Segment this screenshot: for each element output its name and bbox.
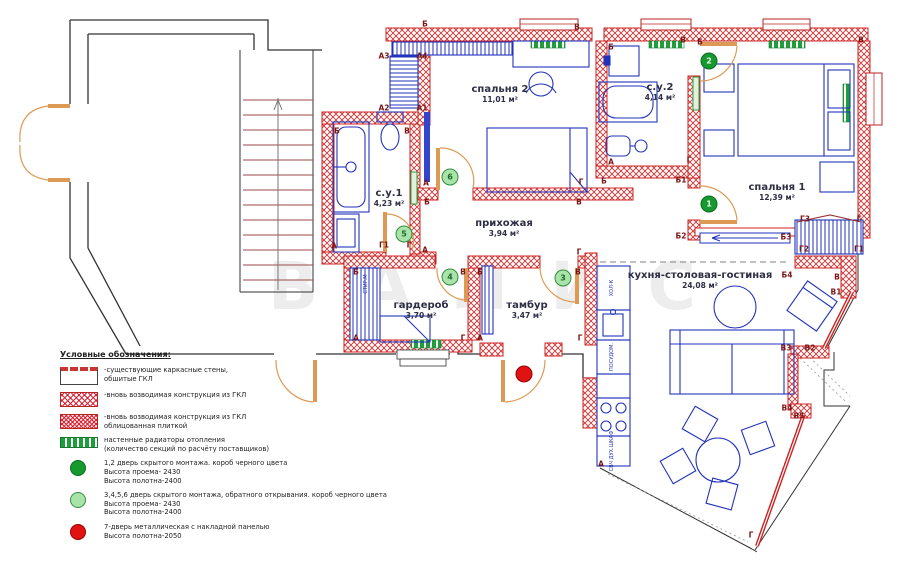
legend-item: 7-дверь металлическая с накладной панель… [60, 523, 390, 540]
gkl-swatch [60, 392, 98, 407]
stairs [243, 98, 313, 290]
floor-plan-page: ВАЛИС [0, 0, 897, 569]
legend-item: настенные радиаторы отопления(количество… [60, 436, 390, 453]
gkl_tile-swatch [60, 414, 98, 429]
legend-item-line: Высота проема- 2430 [104, 500, 387, 509]
legend-swatch-existing [60, 367, 98, 385]
bench [397, 350, 449, 366]
door_red-swatch [70, 524, 86, 540]
legend-item-line: -существующие каркасные стены, [104, 366, 228, 375]
legend-swatch-gkl [60, 392, 98, 407]
legend-item-text: 1,2 дверь скрытого монтажа. короб черног… [104, 459, 287, 485]
legend-item-text: 3,4,5,6 дверь скрытого монтажа, обратног… [104, 491, 387, 517]
legend-item-line: Высота полотна-2050 [104, 532, 269, 541]
legend-item-text: -вновь возводимая конструкция из ГКЛ [104, 391, 246, 400]
legend-item-text: -вновь возводимая конструкция из ГКЛобли… [104, 413, 246, 430]
legend-swatch-door_red [60, 524, 98, 540]
door_light-swatch [70, 492, 86, 508]
radiator-swatch [60, 437, 98, 448]
legend-item-text: -существующие каркасные стены,обшитые ГК… [104, 366, 228, 383]
sliding-door [695, 228, 795, 243]
legend-item: 3,4,5,6 дверь скрытого монтажа, обратног… [60, 491, 390, 517]
legend-item-line: настенные радиаторы отопления [104, 436, 269, 445]
legend-title: Условные обозначения: [60, 350, 390, 359]
legend-item-line: облицованная плиткой [104, 422, 246, 431]
legend-item-line: 1,2 дверь скрытого монтажа. короб черног… [104, 459, 287, 468]
legend-item: -вновь возводимая конструкция из ГКЛ [60, 391, 390, 407]
legend-swatch-door_dark [60, 460, 98, 476]
legend-item-line: Высота полотна-2400 [104, 508, 387, 517]
legend-swatch-gkl_tile [60, 414, 98, 429]
legend-item-text: настенные радиаторы отопления(количество… [104, 436, 269, 453]
legend-swatch-door_light [60, 492, 98, 508]
legend: Условные обозначения: -существующие карк… [60, 350, 390, 546]
legend-item-text: 7-дверь металлическая с накладной панель… [104, 523, 269, 540]
legend-item: 1,2 дверь скрытого монтажа. короб черног… [60, 459, 390, 485]
legend-item-line: (количество секций по расчёту поставщико… [104, 445, 269, 454]
legend-item: -вновь возводимая конструкция из ГКЛобли… [60, 413, 390, 430]
legend-item-line: -вновь возводимая конструкция из ГКЛ [104, 413, 246, 422]
legend-items: -существующие каркасные стены,обшитые ГК… [60, 366, 390, 540]
legend-item-line: Высота проема- 2430 [104, 468, 287, 477]
legend-item-line: обшитые ГКЛ [104, 375, 228, 384]
legend-item-line: 7-дверь металлическая с накладной панель… [104, 523, 269, 532]
legend-item-line: Высота полотна-2400 [104, 477, 287, 486]
door_dark-swatch [70, 460, 86, 476]
existing-swatch [60, 367, 98, 385]
legend-item-line: -вновь возводимая конструкция из ГКЛ [104, 391, 246, 400]
legend-item-line: 3,4,5,6 дверь скрытого монтажа, обратног… [104, 491, 387, 500]
legend-item: -существующие каркасные стены,обшитые ГК… [60, 366, 390, 385]
dashed-guides [600, 262, 850, 542]
legend-swatch-radiator [60, 437, 98, 448]
door-frames-green [411, 77, 699, 204]
